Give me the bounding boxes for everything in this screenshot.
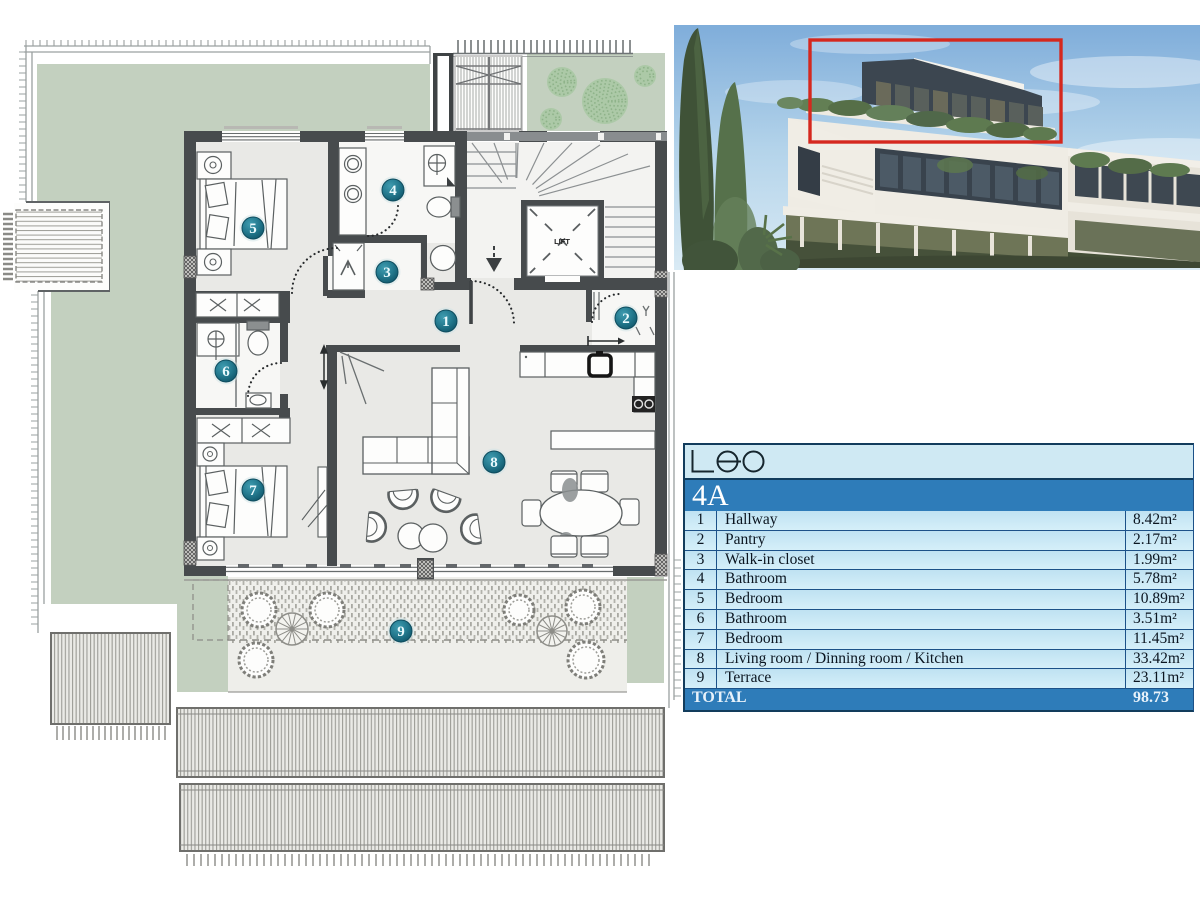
svg-text:8: 8 [490, 455, 498, 471]
svg-text:2: 2 [622, 311, 630, 327]
svg-text:9: 9 [397, 624, 405, 640]
svg-text:1: 1 [442, 314, 450, 330]
svg-text:4: 4 [389, 183, 397, 199]
svg-text:5: 5 [249, 221, 257, 237]
svg-text:3: 3 [383, 265, 391, 281]
svg-text:6: 6 [222, 364, 230, 380]
svg-text:LIFT: LIFT [554, 237, 570, 246]
svg-text:7: 7 [249, 483, 257, 499]
